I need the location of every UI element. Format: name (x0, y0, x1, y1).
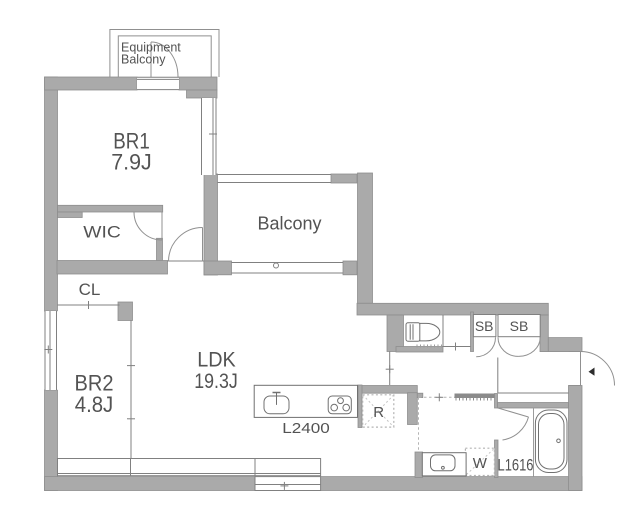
svg-text:W: W (473, 455, 488, 472)
svg-text:Balcony: Balcony (257, 213, 321, 233)
svg-text:7.9J: 7.9J (111, 150, 152, 175)
svg-text:R: R (373, 404, 384, 421)
svg-text:L2400: L2400 (282, 421, 330, 437)
svg-text:4.8J: 4.8J (75, 392, 114, 417)
svg-text:SB: SB (510, 318, 529, 334)
svg-text:LDK: LDK (197, 349, 236, 372)
svg-text:19.3J: 19.3J (194, 370, 238, 393)
svg-text:WIC: WIC (83, 223, 121, 242)
svg-text:SB: SB (475, 318, 494, 334)
svg-text:CL: CL (79, 280, 101, 299)
svg-text:Balcony: Balcony (121, 53, 166, 67)
svg-text:L1616: L1616 (498, 457, 534, 475)
